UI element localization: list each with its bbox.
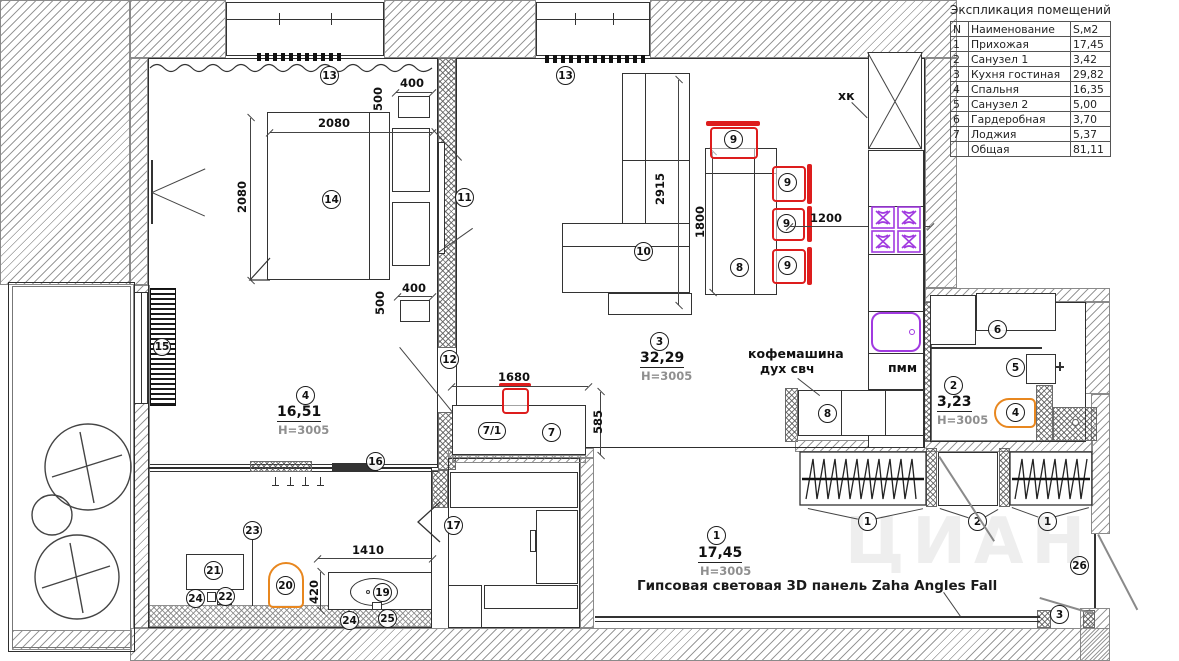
dimension-label: 1800: [693, 206, 707, 238]
room-area-label: 32,29: [640, 350, 684, 368]
marker-drain: 24: [340, 611, 359, 630]
marker-partition: 16: [366, 452, 385, 471]
curtain-track: [545, 55, 645, 63]
marker-sink: 19: [373, 583, 392, 602]
ceiling-height-label: H=3005: [278, 423, 329, 437]
legend-cell: Прихожая: [969, 37, 1071, 52]
marker-chair: 9: [778, 173, 797, 192]
bed-headboard-line: [369, 113, 370, 279]
marker-curtain: 13: [320, 66, 339, 85]
marker-door: 17: [444, 516, 463, 535]
closet-cabinet: [448, 585, 482, 628]
dimension-label: 500: [373, 291, 387, 315]
leader-line: [943, 592, 961, 617]
door-swing-triangle: [416, 500, 442, 544]
chair-back: [706, 121, 760, 126]
dimension-label: 1410: [352, 543, 384, 557]
closet-shelf: [450, 472, 578, 508]
counter-line: [869, 254, 923, 255]
legend-cell: 6: [951, 112, 969, 127]
table-line: [706, 173, 776, 174]
room-marker-kitchen: 3: [650, 332, 669, 351]
curtain-wave: [148, 60, 438, 74]
marker-door: 12: [440, 350, 459, 369]
window-mullion: [279, 13, 280, 25]
cabinet-line: [885, 391, 886, 435]
legend-cell: Гардеробная: [969, 112, 1071, 127]
light-panel-line: [595, 616, 1040, 618]
legend-col-area: S,м2: [1071, 22, 1111, 37]
door-track-mark: [287, 477, 294, 486]
marker-screen: 23: [243, 521, 262, 540]
entrance-door-frame: [1094, 534, 1096, 608]
threshold: [1037, 610, 1051, 628]
window-mullion: [141, 293, 142, 403]
wall-niche: [398, 96, 430, 118]
wardrobe-cell: [938, 452, 998, 506]
dimension-line: [678, 80, 679, 305]
marker-toilet: 4: [1006, 403, 1025, 422]
wall-niche: [400, 300, 430, 322]
wall-segment: [130, 58, 148, 285]
legend-row: 5 Санузел 2 5,00: [951, 97, 1111, 112]
legend-row: 3 Кухня гостиная 29,82: [951, 67, 1111, 82]
legend: Экспликация помещений N Наименование S,м…: [950, 3, 1118, 157]
legend-cell: 5,00: [1071, 97, 1111, 112]
cabinet-line: [841, 391, 842, 435]
sink-drain: [366, 590, 370, 594]
legend-row: 7 Лоджия 5,37: [951, 127, 1111, 142]
marker-tap: 22: [216, 587, 235, 606]
wardrobe-rail: [1010, 452, 1092, 506]
legend-total-row: Общая 81,11: [951, 142, 1111, 157]
dimension-label: 500: [371, 87, 385, 111]
dimension-label: 400: [400, 76, 424, 90]
legend-cell: 3,42: [1071, 52, 1111, 67]
dimension-line: [398, 296, 432, 297]
cooktop-icon: [870, 205, 922, 253]
partition-glass-block: [250, 461, 312, 472]
room-area-label: 16,51: [277, 404, 321, 422]
balcony-window: [134, 292, 148, 404]
legend-cell: 1: [951, 37, 969, 52]
floor-fixture: [207, 592, 216, 602]
wall-segment: [580, 458, 594, 628]
wall-segment: [926, 448, 937, 507]
dimension-line: [396, 92, 432, 93]
nightstand: [392, 128, 430, 192]
legend-cell: Спальня: [969, 82, 1071, 97]
window-mullion: [331, 13, 332, 25]
legend-col-name: Наименование: [969, 22, 1071, 37]
room-marker-bedroom: 4: [296, 386, 315, 405]
legend-row: 4 Спальня 16,35: [951, 82, 1111, 97]
legend-cell: Санузел 2: [969, 97, 1071, 112]
chair-back: [807, 164, 812, 204]
marker-desk2: 7: [542, 423, 561, 442]
marker-threshold: 3: [1050, 605, 1069, 624]
dimension-line: [452, 386, 588, 387]
dimension-label: 1680: [498, 370, 530, 384]
dimension-label: 400: [402, 281, 426, 295]
sink-tap: [1059, 362, 1061, 371]
nightstand: [392, 202, 430, 266]
dimension-line: [318, 558, 432, 559]
wall-segment: [0, 0, 130, 285]
marker-radiator: 15: [153, 338, 171, 356]
fridge-label: хк: [838, 88, 855, 103]
window-mullion: [613, 13, 614, 25]
wall-segment: [452, 455, 586, 463]
legend-table: N Наименование S,м2 1 Прихожая 17,45 2 С…: [950, 21, 1111, 157]
wall-segment: [999, 448, 1010, 507]
curtain-track: [257, 53, 345, 61]
tv: [438, 142, 445, 254]
dimension-label: 2080: [235, 181, 249, 213]
coffee-appliances-label2: дух свч: [760, 361, 815, 376]
closet-cabinet: [536, 510, 578, 584]
door-track-mark: [302, 477, 309, 486]
wall-segment: [130, 0, 226, 58]
legend-cell: Общая: [969, 142, 1071, 157]
sink-tap: [372, 602, 382, 610]
desk-chair: [502, 388, 529, 414]
marker-tv: 11: [455, 188, 474, 207]
dimension-label: 585: [591, 410, 605, 434]
room-area-label: 3,23: [937, 394, 972, 412]
window-mullion: [575, 13, 576, 25]
dimension-line: [250, 118, 251, 280]
marker-table: 8: [730, 258, 749, 277]
sofa-line: [563, 246, 689, 247]
room-area-label: 17,45: [698, 545, 742, 563]
ceiling-height-label: H=3005: [641, 369, 692, 383]
window-sill-line: [537, 19, 651, 20]
door-track-mark: [317, 477, 324, 486]
marker-toilet: 20: [276, 576, 295, 595]
legend-cell: 4: [951, 82, 969, 97]
marker-cabinet: 8: [818, 404, 837, 423]
legend-row: 6 Гардеробная 3,70: [951, 112, 1111, 127]
bath-cabinet: [930, 295, 976, 345]
closet-shelf: [484, 585, 578, 609]
shower-drain: [1072, 419, 1079, 426]
partition-line: [930, 347, 1042, 349]
counter-line: [869, 353, 923, 354]
legend-cell-empty: [951, 142, 969, 157]
dimension-label: 1200: [810, 211, 842, 225]
legend-cell: 3: [951, 67, 969, 82]
balcony-armchairs: [10, 400, 140, 640]
marker-sofa: 10: [634, 242, 653, 261]
window-sill-line: [227, 19, 385, 20]
marker-shower: 21: [204, 561, 223, 580]
legend-cell: 7: [951, 127, 969, 142]
chair-back: [807, 247, 812, 285]
legend-row: 2 Санузел 1 3,42: [951, 52, 1111, 67]
entrance-door-swing: [1097, 534, 1138, 610]
floor-plan: 13 14 2080 2080 400 500 400 500 11 12 16…: [0, 0, 1179, 661]
legend-title: Экспликация помещений: [950, 3, 1118, 17]
coffee-appliances-label: кофемашина: [748, 346, 844, 361]
door-track-mark: [272, 477, 279, 486]
sink-drain: [909, 329, 915, 335]
watermark: ЦИАН: [845, 505, 1093, 579]
dimension-line: [712, 152, 713, 292]
dishwasher-label: пмм: [888, 360, 917, 375]
marker-bed: 14: [322, 190, 341, 209]
marker-chair: 9: [724, 130, 743, 149]
legend-cell: 29,82: [1071, 67, 1111, 82]
legend-row: 1 Прихожая 17,45: [951, 37, 1111, 52]
legend-cell: 2: [951, 52, 969, 67]
legend-header-row: N Наименование S,м2: [951, 22, 1111, 37]
shower-screen: [252, 540, 253, 606]
ceiling-height-label: H=3005: [937, 413, 988, 427]
legend-cell: 3,70: [1071, 112, 1111, 127]
wall-segment: [130, 628, 1110, 661]
dimension-label: 420: [307, 580, 321, 604]
marker-chair: 9: [778, 256, 797, 275]
marker-cabinet: 6: [988, 320, 1007, 339]
dimension-line: [270, 132, 432, 133]
room-marker-bath1: 2: [944, 376, 963, 395]
kitchen-sink: [871, 312, 921, 352]
cabinet-handle: [530, 530, 536, 552]
legend-cell: Лоджия: [969, 127, 1071, 142]
room-marker-hall: 1: [707, 526, 726, 545]
light-panel-line: [595, 621, 1040, 622]
legend-cell: 5,37: [1071, 127, 1111, 142]
wall-segment: [384, 0, 536, 58]
window: [536, 2, 650, 56]
legend-cell: Кухня гостиная: [969, 67, 1071, 82]
ceiling-height-label: H=3005: [700, 564, 751, 578]
bath-sink: [1026, 354, 1056, 384]
dimension-label: 2915: [653, 173, 667, 205]
marker-desk: 7/1: [478, 422, 506, 440]
legend-col-num: N: [951, 22, 969, 37]
sofa-chaise: [608, 293, 692, 315]
legend-cell: Санузел 1: [969, 52, 1071, 67]
sofa-seat-section: [562, 223, 690, 293]
marker-drain: 24: [186, 589, 205, 608]
legend-cell: 16,35: [1071, 82, 1111, 97]
wall-segment: [1085, 302, 1110, 394]
legend-cell: 81,11: [1071, 142, 1111, 157]
legend-cell: 5: [951, 97, 969, 112]
table-line: [754, 149, 755, 294]
window: [226, 2, 384, 56]
dimension-label: 2080: [318, 116, 350, 130]
kitchen-lower-cabinets: [798, 390, 924, 436]
marker-sink: 5: [1006, 358, 1025, 377]
marker-tap: 25: [378, 609, 397, 628]
wardrobe-rail: [800, 452, 926, 506]
wall-segment: [650, 0, 957, 58]
legend-cell: 17,45: [1071, 37, 1111, 52]
marker-curtain: 13: [556, 66, 575, 85]
